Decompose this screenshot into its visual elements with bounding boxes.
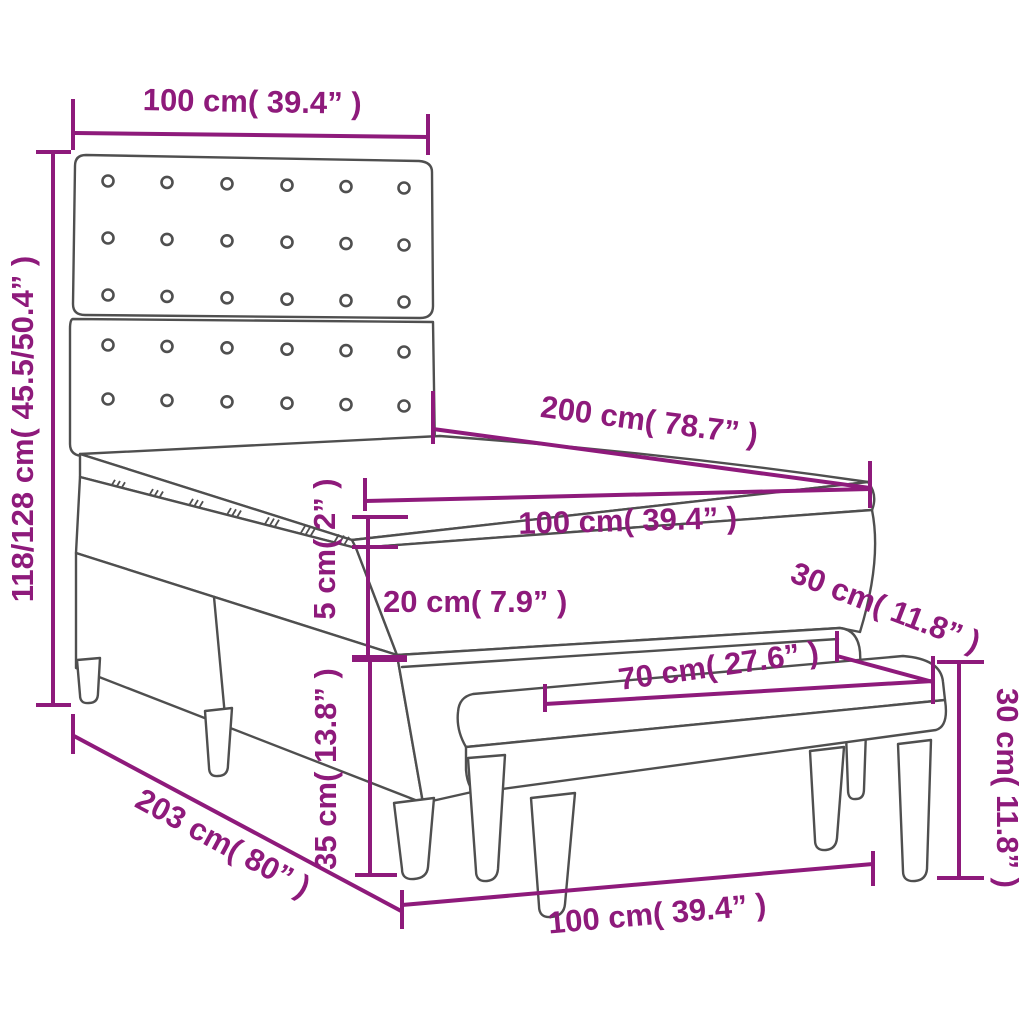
- tufting-button: [103, 394, 114, 405]
- dim-label-base-height: 35 cm( 13.8” ): [308, 668, 343, 870]
- tufting-button: [399, 347, 410, 358]
- headboard-lower-panel: [70, 319, 435, 456]
- bed-diagram-svg: 100 cm( 39.4” ) 118/128 cm( 45.5/50.4” )…: [0, 0, 1024, 1024]
- tufting-button: [222, 235, 233, 246]
- tufting-button: [162, 395, 173, 406]
- tufting-button: [222, 396, 233, 407]
- dim-label-bed-length: 203 cm( 80” ): [130, 781, 316, 904]
- bed-leg-back-left: [77, 658, 100, 703]
- tufting-button: [103, 340, 114, 351]
- dim-label-bench-length: 100 cm( 39.4” ): [547, 887, 768, 941]
- tufting-button: [282, 294, 293, 305]
- tufting-button: [341, 238, 352, 249]
- tufting-button: [103, 233, 114, 244]
- tufting-button: [341, 295, 352, 306]
- tufting-button: [162, 341, 173, 352]
- tufting-button: [341, 181, 352, 192]
- tufting-button: [103, 290, 114, 301]
- bench-leg-front-left: [531, 793, 575, 917]
- dim-label-overall-height: 118/128 cm( 45.5/50.4” ): [5, 256, 40, 602]
- dimension-diagram: 100 cm( 39.4” ) 118/128 cm( 45.5/50.4” )…: [0, 0, 1024, 1024]
- dim-headboard-width: 100 cm( 39.4” ): [73, 82, 429, 155]
- tufting-button: [222, 342, 233, 353]
- tufting-button: [282, 237, 293, 248]
- tufting-button: [222, 292, 233, 303]
- headboard-upper-panel: [73, 155, 433, 318]
- dim-bench-length: 100 cm( 39.4” ): [402, 851, 873, 941]
- tufting-button: [103, 176, 114, 187]
- bed-leg-mid-left: [205, 708, 232, 776]
- dim-label-mattress-width: 100 cm( 39.4” ): [518, 500, 738, 541]
- dim-label-mattress-length: 200 cm( 78.7” ): [539, 389, 761, 452]
- tufting-button: [399, 240, 410, 251]
- bench-leg-back-right: [810, 747, 844, 850]
- dim-label-headboard-width: 100 cm( 39.4” ): [142, 82, 361, 121]
- tufting-button: [282, 180, 293, 191]
- dim-overall-height: 118/128 cm( 45.5/50.4” ): [5, 152, 71, 705]
- tufting-button: [341, 345, 352, 356]
- dim-bench-height: 30 cm( 11.8” ): [937, 662, 1024, 888]
- tufting-button: [282, 344, 293, 355]
- tufting-button: [222, 178, 233, 189]
- tufting-button: [282, 398, 293, 409]
- tufting-button: [162, 291, 173, 302]
- tufting-button: [399, 401, 410, 412]
- dim-label-bench-height: 30 cm( 11.8” ): [990, 688, 1024, 888]
- dimension-line: [75, 133, 429, 137]
- bed-leg-front-left: [394, 798, 434, 879]
- tufting-button: [341, 399, 352, 410]
- dim-label-mattress-height: 20 cm( 7.9” ): [383, 584, 567, 619]
- tufting-button: [162, 177, 173, 188]
- tufting-button: [399, 297, 410, 308]
- tufting-button: [399, 183, 410, 194]
- tufting-button: [162, 234, 173, 245]
- bench-leg-back-left: [468, 755, 505, 881]
- bench-leg-front-right: [898, 740, 931, 881]
- dim-label-topper-height: 5 cm( 2” ): [307, 478, 342, 619]
